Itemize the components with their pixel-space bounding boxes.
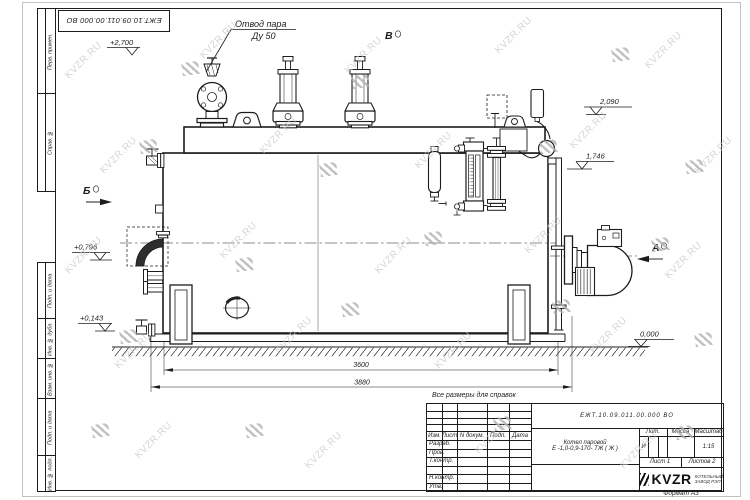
format-note: Формат А3 xyxy=(636,490,726,497)
tb-header-izm: Изм. xyxy=(427,431,442,440)
tb-scale-value: 1:15 xyxy=(694,436,723,457)
tb-mass-label: Масса xyxy=(667,428,694,436)
tb-sheet-cell: Лист 1 xyxy=(639,457,681,467)
margin-cell-first-use: Перв. примен. xyxy=(37,8,56,95)
tb-row-utv: Утв. xyxy=(427,483,459,492)
tb-product-name: Котел паровой Е -1,0-0,9-170- ТЖ ( Ж ) xyxy=(531,428,639,464)
tb-header-podp: Подп. xyxy=(487,431,509,440)
margin-divider xyxy=(38,359,46,399)
reference-note: Все размеры для справок xyxy=(432,392,516,399)
tb-scale-label: Масштаб xyxy=(694,428,723,436)
margin-divider xyxy=(38,9,46,94)
logo-subtext: КОТЕЛЬНЫЙ ЗАВОД РЭП xyxy=(695,474,723,484)
logo-text: KVZR xyxy=(652,471,692,487)
margin-divider xyxy=(38,263,46,319)
margin-cell-sign-date-2: Подп. и дата xyxy=(37,398,56,457)
spring-logo-icon xyxy=(639,473,649,486)
top-stamp-doc-number: ЕЖТ.10.09.011.00.000 ВО xyxy=(58,10,170,32)
tb-sheets-cell: Листов 2 xyxy=(681,457,723,467)
margin-divider xyxy=(38,399,46,456)
tb-header-ndoc: N докум. xyxy=(457,431,487,440)
tb-row-tkontr: Т.контр. xyxy=(427,457,459,466)
tb-row-razrab: Разраб. xyxy=(427,440,459,449)
margin-divider xyxy=(38,319,46,359)
margin-cell-inv-dupl: Инв. № дубл. xyxy=(37,318,56,360)
margin-cell-inv-orig: Инв. № подл. xyxy=(37,455,56,492)
company-logo: KVZR КОТЕЛЬНЫЙ ЗАВОД РЭП xyxy=(639,467,723,491)
tb-header-data: Дата xyxy=(509,431,531,440)
margin-divider xyxy=(38,456,46,491)
margin-cell-sign-date-1: Подп. и дата xyxy=(37,262,56,320)
margin-divider xyxy=(38,94,46,191)
tb-header-list: Лист xyxy=(442,431,457,440)
tb-row-prov: Пров. xyxy=(427,449,459,458)
title-block: Изм. Лист N докум. Подп. Дата Разраб. Пр… xyxy=(426,403,724,492)
tb-lit-label: Лит. xyxy=(639,428,667,436)
tb-row-nkontr: Н.контр. xyxy=(427,474,459,483)
margin-cell-repl-inv: Взам. инв. № xyxy=(37,358,56,400)
margin-cell-ref-number: Справ. № xyxy=(37,93,56,192)
engineering-drawing-sheet: ЕЖТ.10.09.011.00.000 ВО Перв. примен. Сп… xyxy=(0,0,750,500)
tb-doc-number: ЕЖТ.10.09.011.00.000 ВО xyxy=(531,404,723,428)
tb-lit-value: И xyxy=(639,436,648,457)
